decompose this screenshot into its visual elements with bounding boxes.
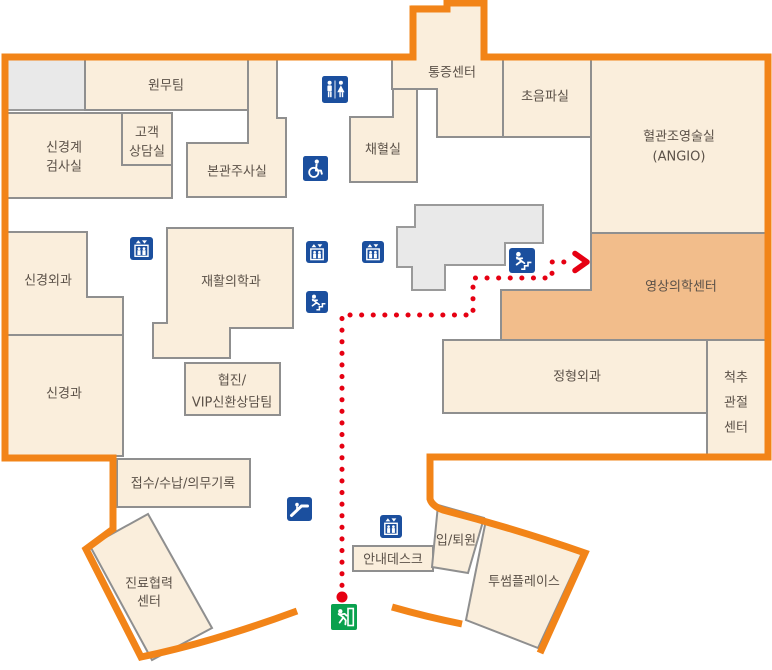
elevator-icon <box>306 241 328 263</box>
room-twosome-label: 투썸플레이스 <box>488 575 560 590</box>
elevator-icon <box>130 237 153 260</box>
room-yeongsang-label: 영상의학센터 <box>645 280 717 295</box>
room-chaehyeol-label: 채혈실 <box>365 143 401 158</box>
room-bongwan-label: 본관주사실 <box>207 165 267 180</box>
room-jaehwal-label: 재활의학과 <box>201 275 261 290</box>
room-gogaek-label-2: 상담실 <box>129 145 165 160</box>
room-wonmu-label: 원무팀 <box>148 79 184 94</box>
route-start-dot <box>337 592 348 603</box>
room-singyeongoegwa-label: 신경외과 <box>24 274 72 289</box>
room-jinryo-label-2: 센터 <box>137 595 161 610</box>
stairs-icon <box>509 248 535 273</box>
room-jeonghyeong-label: 정형외과 <box>553 370 601 385</box>
room-cheokchu-label-1: 척추 <box>724 371 748 386</box>
escalator-icon <box>287 497 312 521</box>
room-iptoewon-label: 입/퇴원 <box>436 534 476 549</box>
room-singyeonggye-label-1: 신경계 <box>46 141 82 156</box>
floor-map-canvas: 원무팀 신경계 검사실 고객 상담실 본관주사실 통증센터 채혈실 초음파실 혈… <box>0 0 772 670</box>
room-choeumpa-label: 초음파실 <box>521 90 569 105</box>
room-angio-label-1: 혈관조영술실 <box>643 130 715 145</box>
elevator-icon <box>380 515 402 538</box>
room-annae-label: 안내데스크 <box>363 553 423 568</box>
room-jinryo-label-1: 진료협력 <box>125 577 173 592</box>
room-angio <box>591 58 767 233</box>
room-singyeonggwa-label: 신경과 <box>46 387 82 402</box>
room-unlabeled-gray <box>6 58 85 110</box>
building-outline-entrance-segment <box>392 607 462 624</box>
emergency-exit-icon <box>331 604 357 630</box>
room-yeongsang-highlighted <box>501 233 767 340</box>
room-chaehyeol <box>350 89 417 182</box>
route-arrow <box>575 254 587 271</box>
room-hyeopjin-label-2: VIP신환상담팀 <box>192 396 272 411</box>
room-cheokchu-label-3: 센터 <box>724 421 748 436</box>
room-bump-annex <box>411 5 486 62</box>
room-singyeonggye-label-2: 검사실 <box>46 160 82 175</box>
restroom-icon <box>322 76 348 103</box>
stairs-icon <box>306 291 328 313</box>
room-cheokchu-label-2: 관절 <box>724 396 748 411</box>
room-angio-label-2: (ANGIO) <box>653 150 706 165</box>
room-hyeopjin-label-1: 협진/ <box>218 374 247 389</box>
elevator-icon <box>362 241 384 263</box>
hospital-floor-map: 원무팀 신경계 검사실 고객 상담실 본관주사실 통증센터 채혈실 초음파실 혈… <box>0 0 772 670</box>
room-tongjeung-label: 통증센터 <box>428 66 476 81</box>
wheelchair-icon <box>303 156 328 181</box>
room-jaehwal <box>153 228 293 358</box>
room-jeopsu-label: 접수/수납/의무기록 <box>131 477 235 492</box>
room-gogaek-label-1: 고객 <box>135 126 159 141</box>
